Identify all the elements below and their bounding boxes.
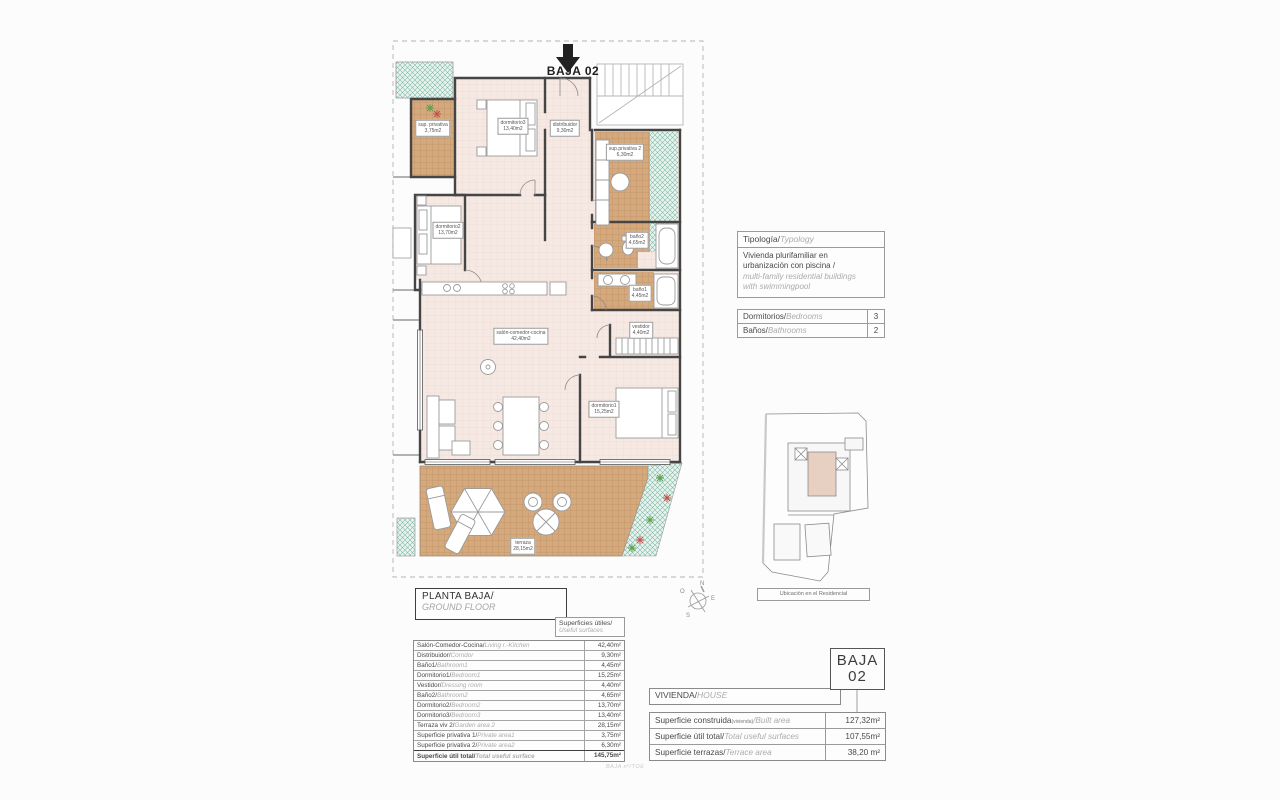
row-label-en: Bathroom1 <box>437 662 468 669</box>
row-label-en: Private area2 <box>477 742 514 749</box>
row-label-en: Total useful surface <box>475 753 534 760</box>
useful-total-row: Superficie útil total/Total useful surfa… <box>650 728 885 744</box>
row-label-en: Garden area 2 <box>454 722 495 729</box>
room-label-sup-privativa-1: sup. privativa 3,75m2 <box>415 120 450 137</box>
built-area-row: Superficie construida(vivienda)/Built ar… <box>650 713 885 728</box>
row-label-es: Terraza viv 2/ <box>417 722 454 729</box>
row-label-es: Superficie terrazas/ <box>655 748 726 757</box>
plan-sheet: BAJA 02 sup. privativa 3,75m2 dormitorio… <box>0 0 1280 800</box>
row-label-en: Private area1 <box>477 732 514 739</box>
table-row: Vestidor/Dressing room4,40m² <box>414 680 624 690</box>
table-row: Dormitorio3/Bedroom313,40m² <box>414 710 624 720</box>
table-row: Superficie privativa 1/Private area13,75… <box>414 730 624 740</box>
unit-badge-line1: BAJA <box>837 653 879 670</box>
row-label-es: Distribuidor/ <box>417 652 451 659</box>
compass-west-label: O <box>680 589 685 595</box>
row-value: 3,75m² <box>584 731 624 740</box>
row-value: 4,45m² <box>584 661 624 670</box>
table-row: Baño1/Bathroom14,45m² <box>414 660 624 670</box>
row-value: 145,75m² <box>584 751 624 761</box>
row-value: 9,30m² <box>584 651 624 660</box>
table-row: Dormitorio2/Bedroom213,70m² <box>414 700 624 710</box>
typology-box: Tipología/Typology Vivienda plurifamilia… <box>737 231 885 298</box>
room-label-dormitorio1: dormitorio1 15,25m2 <box>588 401 619 418</box>
room-label-dormitorio2: dormitorio2 13,70m2 <box>432 222 463 239</box>
row-value: 4,40m² <box>584 681 624 690</box>
row-label-es: Baño1/ <box>417 662 437 669</box>
room-area: 13,70m2 <box>435 230 460 236</box>
floor-plan-drawing <box>0 0 1280 800</box>
row-label-en: Living r.-Kitchen <box>485 642 530 649</box>
room-label-dormitorio3: dormitorio3 13,40m2 <box>497 118 528 135</box>
row-label-en: Bathroom2 <box>437 692 468 699</box>
row-value: 38,20 m² <box>825 745 885 760</box>
site-map-caption: Ubicación en el Residencial <box>757 588 870 601</box>
house-label-es: VIVIENDA/ <box>655 690 697 700</box>
house-totals-table: Superficie construida(vivienda)/Built ar… <box>649 712 886 761</box>
unit-badge-line2: 02 <box>848 669 867 686</box>
row-value: 4,65m² <box>584 691 624 700</box>
useful-header-es: Superficies útiles/ <box>559 620 621 627</box>
row-label-en: Total useful surfaces <box>724 732 799 741</box>
room-area: 4,40m2 <box>632 330 650 336</box>
room-label-bano1: baño1 4,45m2 <box>629 285 652 302</box>
row-value: 15,25m² <box>584 671 624 680</box>
row-value: 107,55m² <box>825 729 885 744</box>
room-label-vestidor: vestidor 4,40m2 <box>629 322 653 339</box>
row-label-es: Superficie útil total/ <box>417 753 475 760</box>
row-label-es: Salón-Comedor-Cocina/ <box>417 642 485 649</box>
compass-south-label: S <box>686 613 690 619</box>
table-total-row: Superficie útil total/Total useful surfa… <box>414 750 624 761</box>
bedrooms-label-es: Dormitorios/ <box>743 312 786 321</box>
table-row: Terraza viv 2/Garden area 228,15m² <box>414 720 624 730</box>
room-label-terraza: terraza 28,15m2 <box>510 538 535 555</box>
compass-north-label: N <box>700 581 704 587</box>
room-area: 9,30m2 <box>553 128 577 134</box>
row-label-en: Bedroom3 <box>451 712 480 719</box>
room-area: 15,25m2 <box>591 409 616 415</box>
room-area: 4,65m2 <box>629 240 646 246</box>
row-value: 42,40m² <box>584 641 624 650</box>
room-area: 13,40m2 <box>500 126 525 132</box>
row-label-en: Corridor <box>451 652 474 659</box>
row-label-es: Superficie privativa 2/ <box>417 742 477 749</box>
row-label-es: Dormitorio1/ <box>417 672 451 679</box>
bathrooms-row: Baños/Bathrooms 2 <box>738 323 884 337</box>
table-row: Superficie privativa 2/Private area26,30… <box>414 740 624 750</box>
bedrooms-count: 3 <box>867 310 884 323</box>
typology-title-en: Typology <box>780 234 814 244</box>
typology-line4: with swimmingpool <box>743 282 879 292</box>
room-area: 4,45m2 <box>632 293 649 299</box>
table-row: Salón-Comedor-Cocina/Living r.-Kitchen42… <box>414 641 624 650</box>
row-value: 13,40m² <box>584 711 624 720</box>
floor-title-box: PLANTA BAJA/ GROUND FLOOR <box>415 588 567 620</box>
row-label-es: Vestidor/ <box>417 682 442 689</box>
bathrooms-label-en: Bathrooms <box>768 326 807 335</box>
typology-body: Vivienda plurifamiliar en urbanización c… <box>738 248 884 297</box>
row-value: 127,32m² <box>825 713 885 728</box>
row-label-en: Bedroom1 <box>451 672 480 679</box>
room-area: 28,15m2 <box>513 546 532 552</box>
unit-badge: BAJA 02 <box>830 648 885 690</box>
sheet-reference-note: BAJA nº/TOE <box>606 764 644 770</box>
room-label-salon: salón-comedor-cocina 42,40m2 <box>493 328 548 345</box>
row-label-sub: (vivienda) <box>731 719 753 725</box>
row-label-es: Dormitorio2/ <box>417 702 451 709</box>
typology-header: Tipología/Typology <box>738 232 884 248</box>
useful-surfaces-header: Superficies útiles/ Useful surfaces <box>555 617 625 637</box>
room-area: 42,40m2 <box>496 336 545 342</box>
room-label-bano2: baño2 4,65m2 <box>626 232 649 249</box>
floor-title-es: PLANTA BAJA/ <box>422 591 560 602</box>
row-label-en: Bedroom2 <box>451 702 480 709</box>
room-label-distribuidor: distribuidor 9,30m2 <box>550 120 580 137</box>
row-label-es: Superficie construida <box>655 716 731 725</box>
row-label-es: Dormitorio3/ <box>417 712 451 719</box>
room-label-sup-privativa-2: sup.privativa 2 6,30m2 <box>606 144 644 161</box>
unit-arrow-label: BAJA 02 <box>540 64 606 78</box>
bathrooms-count: 2 <box>867 324 884 337</box>
room-area: 6,30m2 <box>609 152 641 158</box>
table-row: Distribuidor/Corridor9,30m² <box>414 650 624 660</box>
terrace-area-row: Superficie terrazas/Terrace area 38,20 m… <box>650 744 885 760</box>
row-label-en: Terrace area <box>726 748 772 757</box>
typology-line1: Vivienda plurifamiliar en <box>743 251 879 261</box>
bathrooms-label-es: Baños/ <box>743 326 768 335</box>
row-value: 13,70m² <box>584 701 624 710</box>
house-header-box: VIVIENDA/HOUSE <box>649 688 841 705</box>
house-label-en: HOUSE <box>697 690 727 700</box>
bedrooms-label-en: Bedrooms <box>786 312 822 321</box>
typology-line3: multi-family residential buildings <box>743 272 879 282</box>
row-label-en: Dressing room <box>442 682 483 689</box>
row-value: 6,30m² <box>584 741 624 750</box>
typology-title-es: Tipología/ <box>743 234 780 244</box>
row-label-en: /Built area <box>753 716 790 725</box>
table-row: Baño2/Bathroom24,65m² <box>414 690 624 700</box>
room-area: 3,75m2 <box>418 128 447 134</box>
floor-title-en: GROUND FLOOR <box>422 602 560 612</box>
row-label-es: Baño2/ <box>417 692 437 699</box>
typology-line2: urbanización con piscina / <box>743 261 879 271</box>
useful-surfaces-table: Salón-Comedor-Cocina/Living r.-Kitchen42… <box>413 640 625 762</box>
bedrooms-row: Dormitorios/Bedrooms 3 <box>738 310 884 323</box>
compass-east-label: E <box>711 596 715 602</box>
row-label-es: Superficie privativa 1/ <box>417 732 477 739</box>
counts-box: Dormitorios/Bedrooms 3 Baños/Bathrooms 2 <box>737 309 885 338</box>
row-value: 28,15m² <box>584 721 624 730</box>
table-row: Dormitorio1/Bedroom115,25m² <box>414 670 624 680</box>
row-label-es: Superficie útil total/ <box>655 732 724 741</box>
useful-header-en: Useful surfaces <box>559 627 621 634</box>
